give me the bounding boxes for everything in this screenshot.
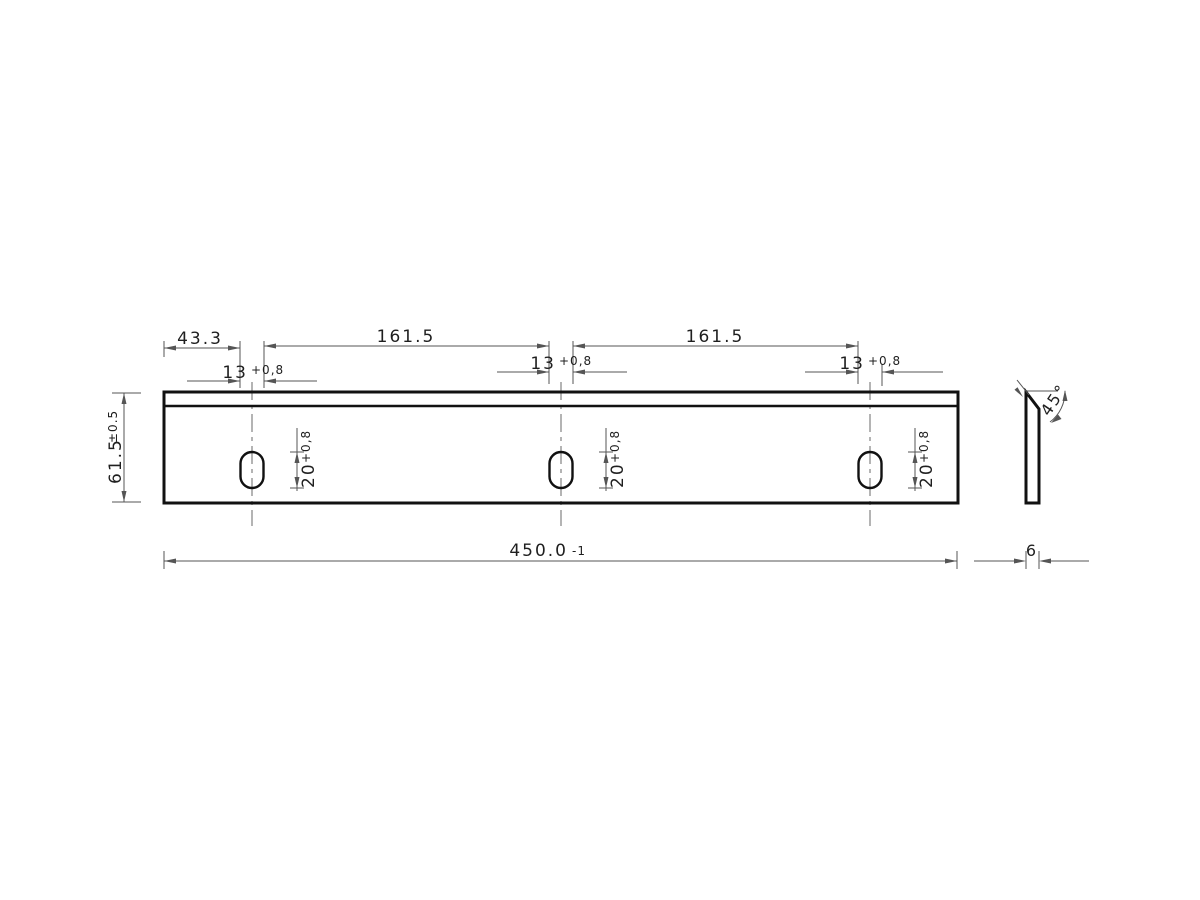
slot-2-width-label: 13 bbox=[530, 354, 556, 374]
slot-2-height-tolerance: +0,8 bbox=[608, 430, 622, 463]
slot-2-width-tolerance: +0,8 bbox=[559, 354, 592, 368]
blade-height-label: 61.5 bbox=[106, 438, 126, 484]
total-length-label: 450.0 bbox=[509, 541, 568, 561]
slot-3-height-tolerance: +0,8 bbox=[917, 430, 931, 463]
dim-thickness: 6 bbox=[974, 541, 1089, 569]
dim-pitch-2: 161.5 bbox=[573, 327, 858, 349]
arrowhead-right bbox=[537, 344, 549, 349]
arrowhead-chamfer bbox=[1015, 387, 1024, 397]
dim-pitch-1-label: 161.5 bbox=[377, 327, 436, 347]
arrowhead-right bbox=[573, 370, 585, 375]
slot-1-height-label: 20 bbox=[299, 462, 319, 488]
dim-pitch-1: 161.5 bbox=[264, 327, 549, 349]
slot-1-height-tolerance: +0,8 bbox=[299, 430, 313, 463]
slot-2-height-label: 20 bbox=[608, 462, 628, 488]
arrowhead-right bbox=[1039, 559, 1051, 564]
arrowhead-top bbox=[122, 393, 127, 404]
arrowhead-left bbox=[264, 344, 276, 349]
dim-slot-1-width: 13 +0,8 bbox=[187, 363, 317, 384]
slot-3-width-tolerance: +0,8 bbox=[868, 354, 901, 368]
arrowhead-bottom bbox=[122, 491, 127, 502]
dim-offset-left-label: 43.3 bbox=[177, 329, 223, 349]
dim-slot-1-height: 20 +0,8 bbox=[290, 428, 319, 491]
dim-pitch-2-label: 161.5 bbox=[686, 327, 745, 347]
arrowhead-right bbox=[228, 346, 240, 351]
dim-slot-2-width: 13 +0,8 bbox=[497, 354, 627, 375]
dim-slot-3-width: 13 +0,8 bbox=[805, 354, 943, 375]
slot-3-height-label: 20 bbox=[917, 462, 937, 488]
dim-total-length: 450.0 -1 bbox=[164, 541, 957, 569]
slot-3-width-label: 13 bbox=[839, 354, 865, 374]
arrowhead-right bbox=[945, 559, 957, 564]
arrowhead-right bbox=[846, 344, 858, 349]
dim-offset-left: 43.3 bbox=[164, 329, 240, 351]
arrowhead-right bbox=[264, 379, 276, 384]
arrowhead-left bbox=[573, 344, 585, 349]
arrowhead-left bbox=[1014, 559, 1026, 564]
arrowhead-left bbox=[164, 559, 176, 564]
thickness-label: 6 bbox=[1026, 541, 1038, 560]
dim-slot-2-height: 20 +0,8 bbox=[599, 428, 628, 491]
front-view: 43.3 161.5 161.5 13 +0,8 bbox=[106, 327, 958, 569]
slot-1-width-tolerance: +0,8 bbox=[251, 363, 284, 377]
blade-height-tolerance: ±0.5 bbox=[106, 410, 120, 443]
arrowhead-left bbox=[164, 346, 176, 351]
side-view: 45° 6 bbox=[974, 380, 1089, 569]
arrowhead-right bbox=[882, 370, 894, 375]
total-length-tolerance: -1 bbox=[572, 544, 586, 558]
dim-blade-height: 61.5 ±0.5 bbox=[106, 393, 141, 502]
slot-1-width-label: 13 bbox=[222, 363, 248, 383]
dim-slot-3-height: 20 +0,8 bbox=[908, 428, 937, 491]
dim-chamfer-angle: 45° bbox=[1015, 380, 1072, 423]
blade-technical-drawing: 43.3 161.5 161.5 13 +0,8 bbox=[0, 0, 1200, 900]
